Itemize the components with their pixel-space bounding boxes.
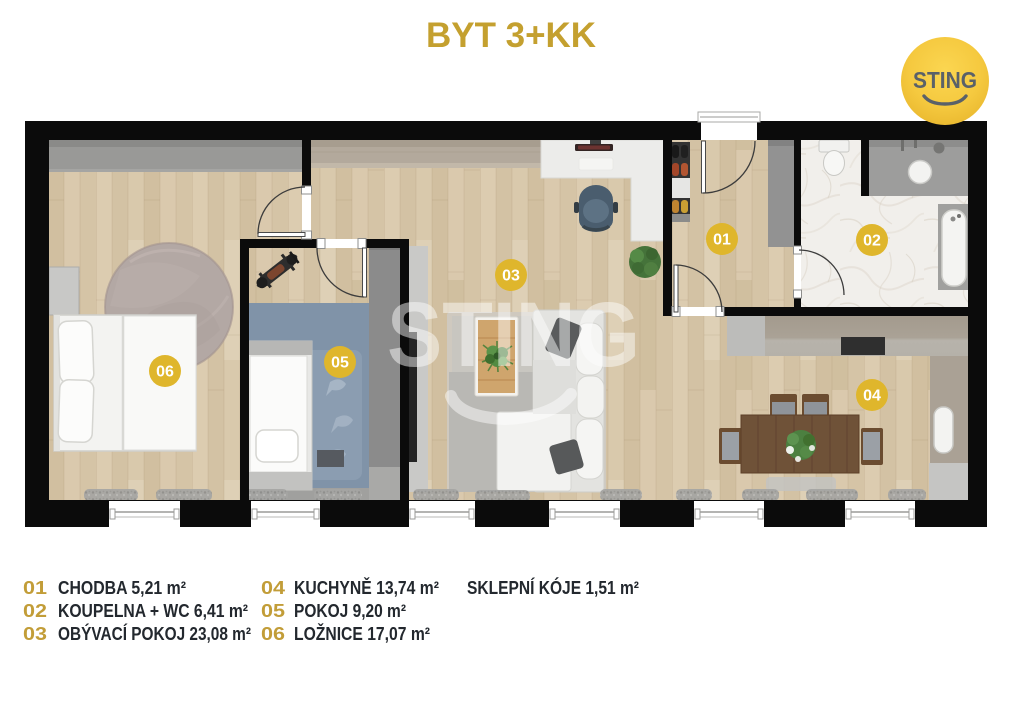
svg-text:01: 01	[23, 578, 47, 598]
svg-text:06: 06	[261, 624, 285, 644]
svg-text:02: 02	[23, 601, 47, 621]
svg-text:LOŽNICE 17,07 m²: LOŽNICE 17,07 m²	[294, 623, 430, 644]
svg-text:04: 04	[261, 578, 285, 598]
svg-text:KOUPELNA + WC 6,41 m²: KOUPELNA + WC 6,41 m²	[58, 601, 248, 621]
svg-text:06: 06	[156, 364, 174, 381]
svg-text:BYT 3+KK: BYT 3+KK	[426, 16, 596, 55]
svg-text:STING: STING	[913, 67, 977, 93]
svg-text:KUCHYNĚ 13,74 m²: KUCHYNĚ 13,74 m²	[294, 577, 439, 598]
svg-text:SKLEPNÍ KÓJE 1,51 m²: SKLEPNÍ KÓJE 1,51 m²	[467, 577, 639, 598]
svg-text:POKOJ 9,20 m²: POKOJ 9,20 m²	[294, 601, 406, 621]
svg-text:03: 03	[23, 624, 47, 644]
svg-text:CHODBA 5,21 m²: CHODBA 5,21 m²	[58, 578, 186, 598]
svg-text:02: 02	[863, 233, 881, 250]
svg-text:05: 05	[261, 601, 285, 621]
svg-text:05: 05	[331, 355, 349, 372]
svg-text:01: 01	[713, 232, 731, 249]
svg-text:03: 03	[502, 268, 520, 285]
svg-text:OBÝVACÍ POKOJ 23,08 m²: OBÝVACÍ POKOJ 23,08 m²	[58, 623, 251, 644]
svg-text:STING: STING	[387, 284, 640, 386]
svg-text:04: 04	[863, 388, 881, 405]
